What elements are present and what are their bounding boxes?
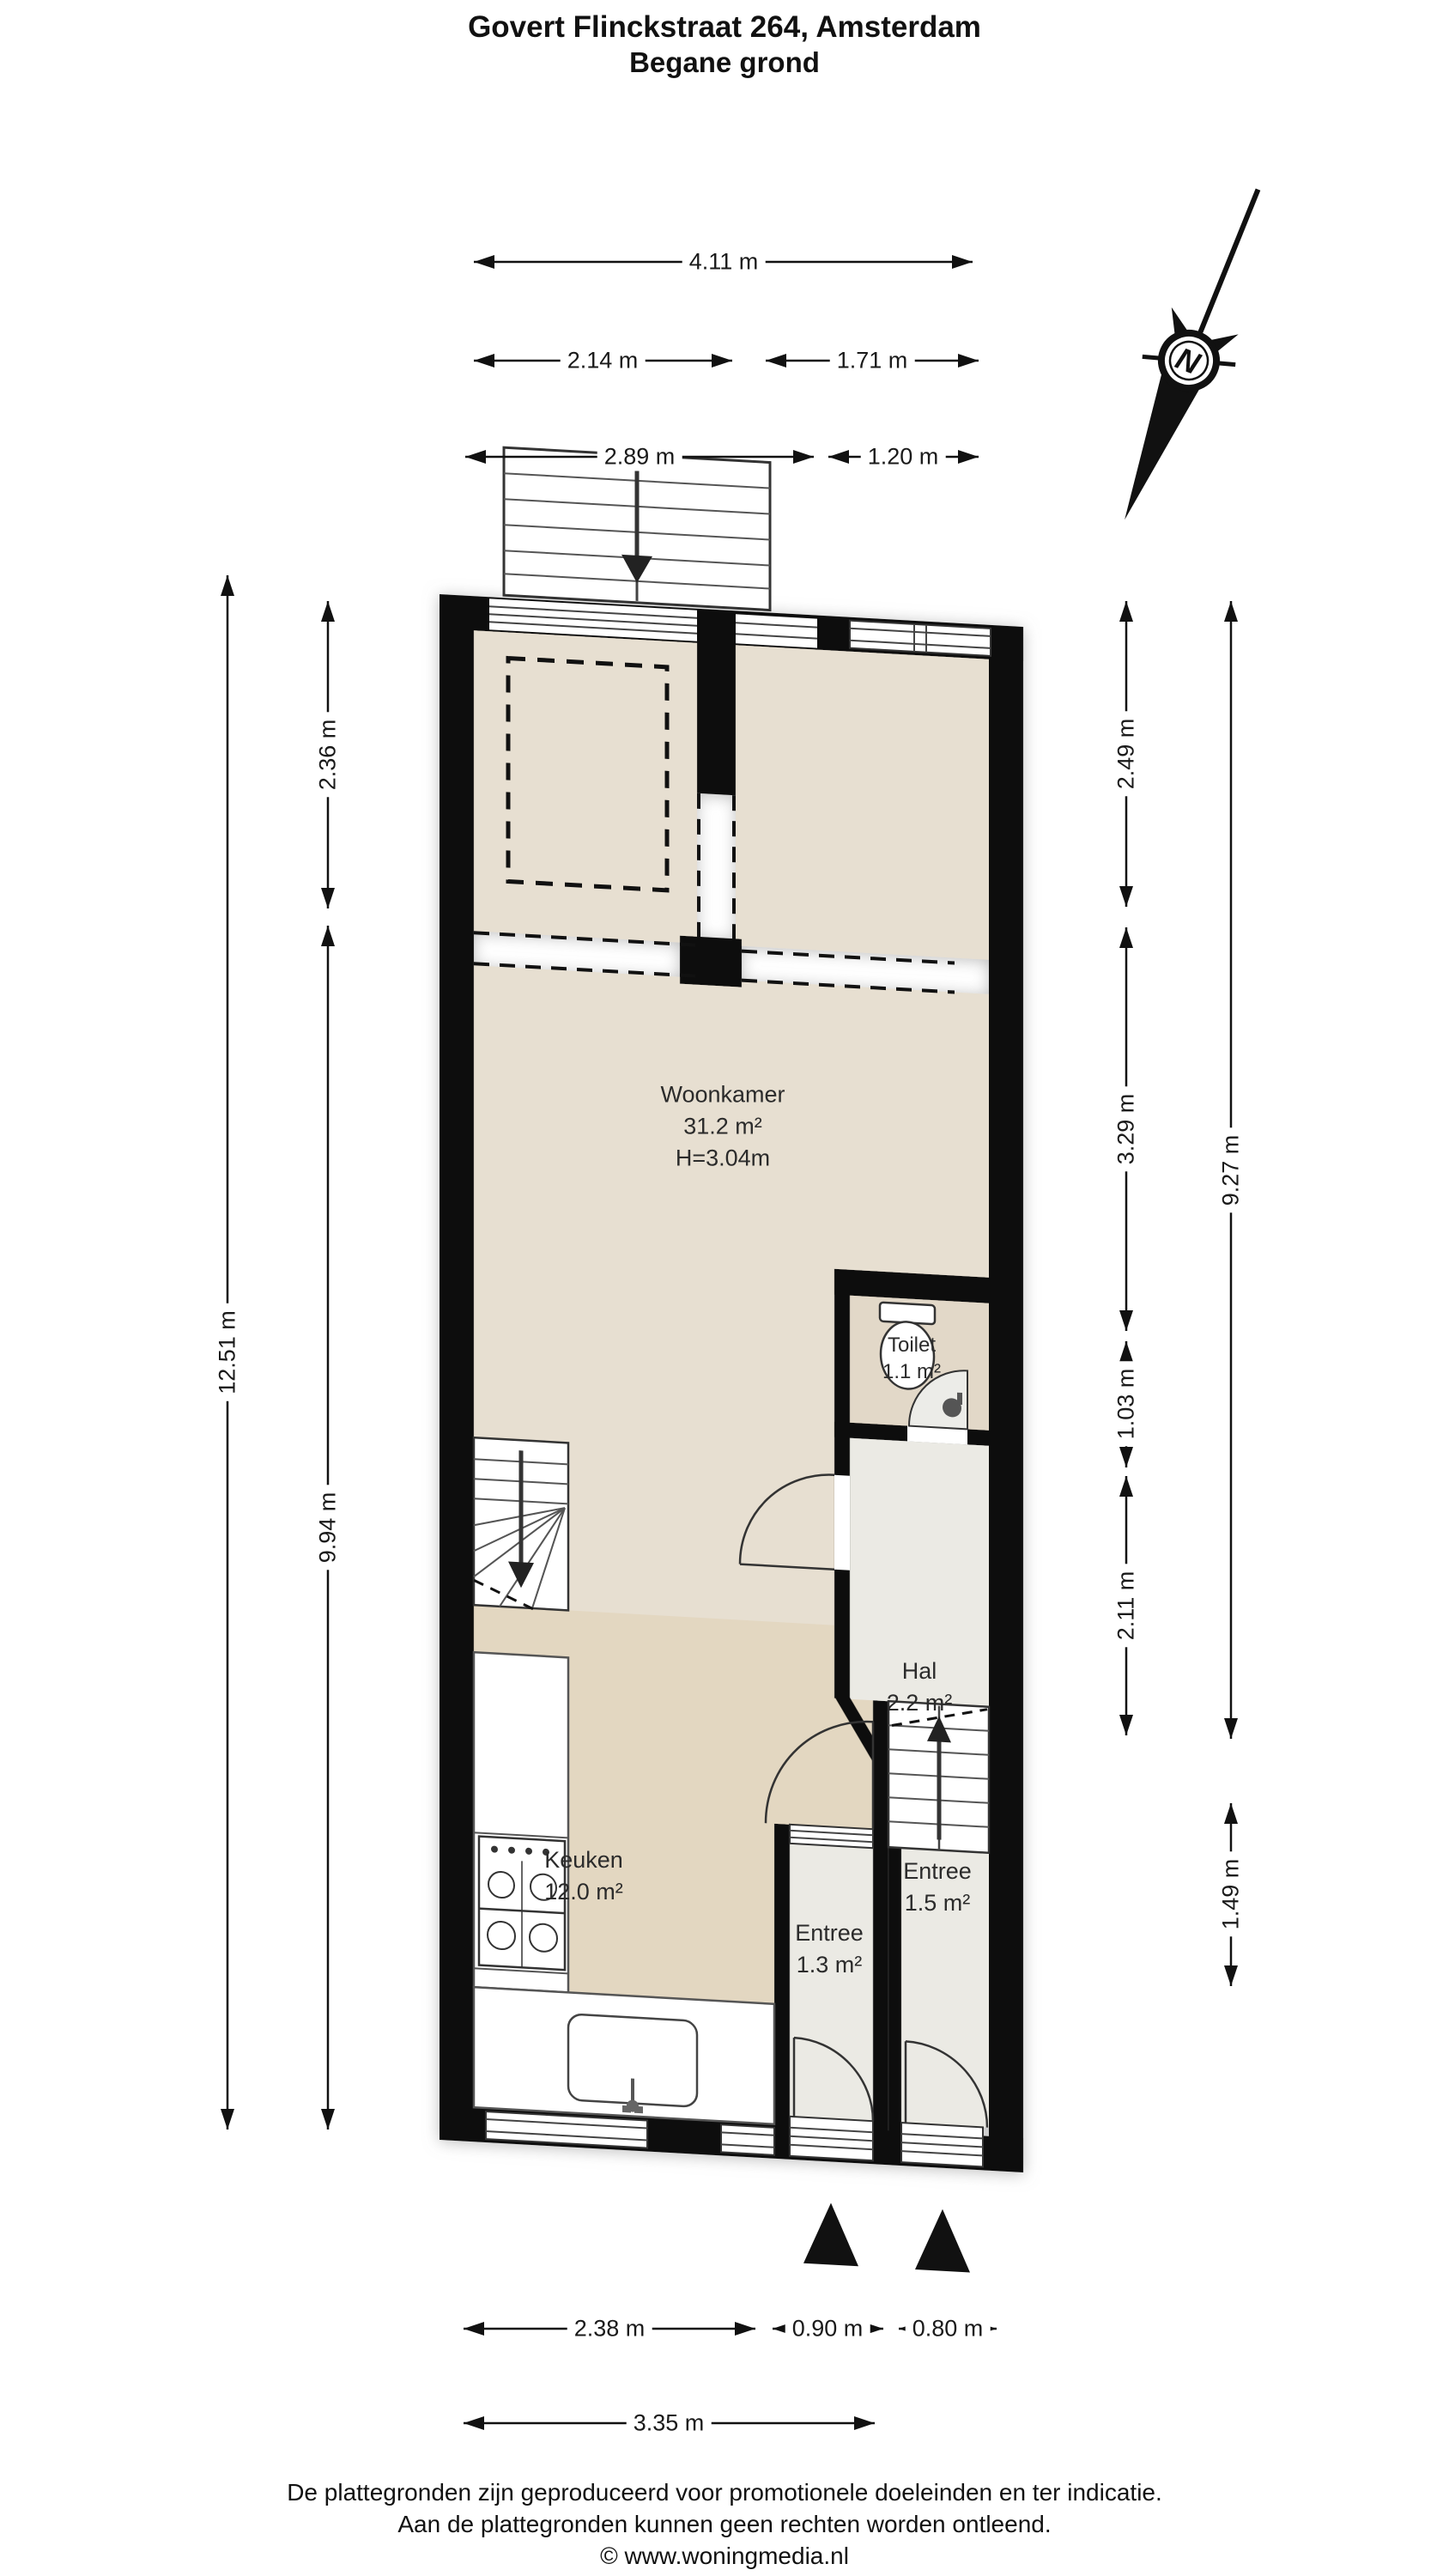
- dim-bottom-entree2: 0.80 m: [906, 2315, 991, 2343]
- entrance-arrow: [915, 2208, 970, 2273]
- exterior-stairs: [504, 447, 770, 610]
- disclaimer-line-2: Aan de plattegronden kunnen geen rechten…: [0, 2508, 1449, 2540]
- label-entree-achter: Entree 1.5 m²: [903, 1856, 972, 1919]
- dim-bottom-total: 3.35 m: [627, 2409, 712, 2438]
- dim-left-total: 12.51 m: [214, 1303, 242, 1401]
- dim-right-hal: 2.11 m: [1113, 1564, 1141, 1648]
- dim-left-upper: 2.36 m: [314, 713, 343, 798]
- label-hal: Hal 2.2 m²: [887, 1656, 953, 1719]
- label-toilet: Toilet 1.1 m²: [882, 1332, 941, 1385]
- page-subtitle: Begane grond: [0, 46, 1449, 79]
- dim-right-living: 3.29 m: [1113, 1087, 1141, 1172]
- footer-disclaimer: De plattegronden zijn geproduceerd voor …: [0, 2476, 1449, 2572]
- title-block: Govert Flinckstraat 264, Amsterdam Began…: [0, 10, 1449, 79]
- dim-top-right2: 1.20 m: [861, 443, 946, 471]
- dim-top-total: 4.11 m: [682, 248, 766, 276]
- sink-icon: [568, 2014, 697, 2116]
- dim-right-total: 9.27 m: [1217, 1128, 1246, 1213]
- interior-stairs-up: [888, 1701, 989, 1853]
- floorplan-page: Govert Flinckstraat 264, Amsterdam Began…: [0, 0, 1449, 2576]
- dim-left-lower: 9.94 m: [314, 1485, 343, 1571]
- label-entree-voor: Entree 1.3 m²: [795, 1917, 864, 1981]
- dim-right-toilet: 1.03 m: [1113, 1362, 1141, 1447]
- dim-bottom-keuken: 2.38 m: [567, 2315, 652, 2343]
- dim-bottom-entree1: 0.90 m: [785, 2315, 870, 2343]
- label-woonkamer: Woonkamer 31.2 m² H=3.04m: [660, 1079, 785, 1175]
- label-keuken: Keuken 12.0 m²: [544, 1844, 623, 1908]
- disclaimer-line-1: De plattegronden zijn geproduceerd voor …: [0, 2476, 1449, 2508]
- interior-stairs-down: [474, 1437, 568, 1612]
- room-voorkamer-rechts: [736, 645, 989, 959]
- copyright-line: © www.woningmedia.nl: [0, 2540, 1449, 2572]
- window-rear-right: [721, 2124, 774, 2154]
- floorplan-drawing: N: [0, 0, 1449, 2576]
- page-title: Govert Flinckstraat 264, Amsterdam: [0, 10, 1449, 45]
- dim-right-room: 2.49 m: [1113, 712, 1141, 797]
- compass-north-icon: N: [1083, 173, 1300, 537]
- entrance-arrow: [803, 2202, 858, 2267]
- dim-right-entree: 1.49 m: [1217, 1852, 1246, 1937]
- dim-top-left2: 2.89 m: [597, 443, 682, 471]
- dim-top-right: 1.71 m: [830, 347, 915, 375]
- dim-top-left: 2.14 m: [561, 347, 646, 375]
